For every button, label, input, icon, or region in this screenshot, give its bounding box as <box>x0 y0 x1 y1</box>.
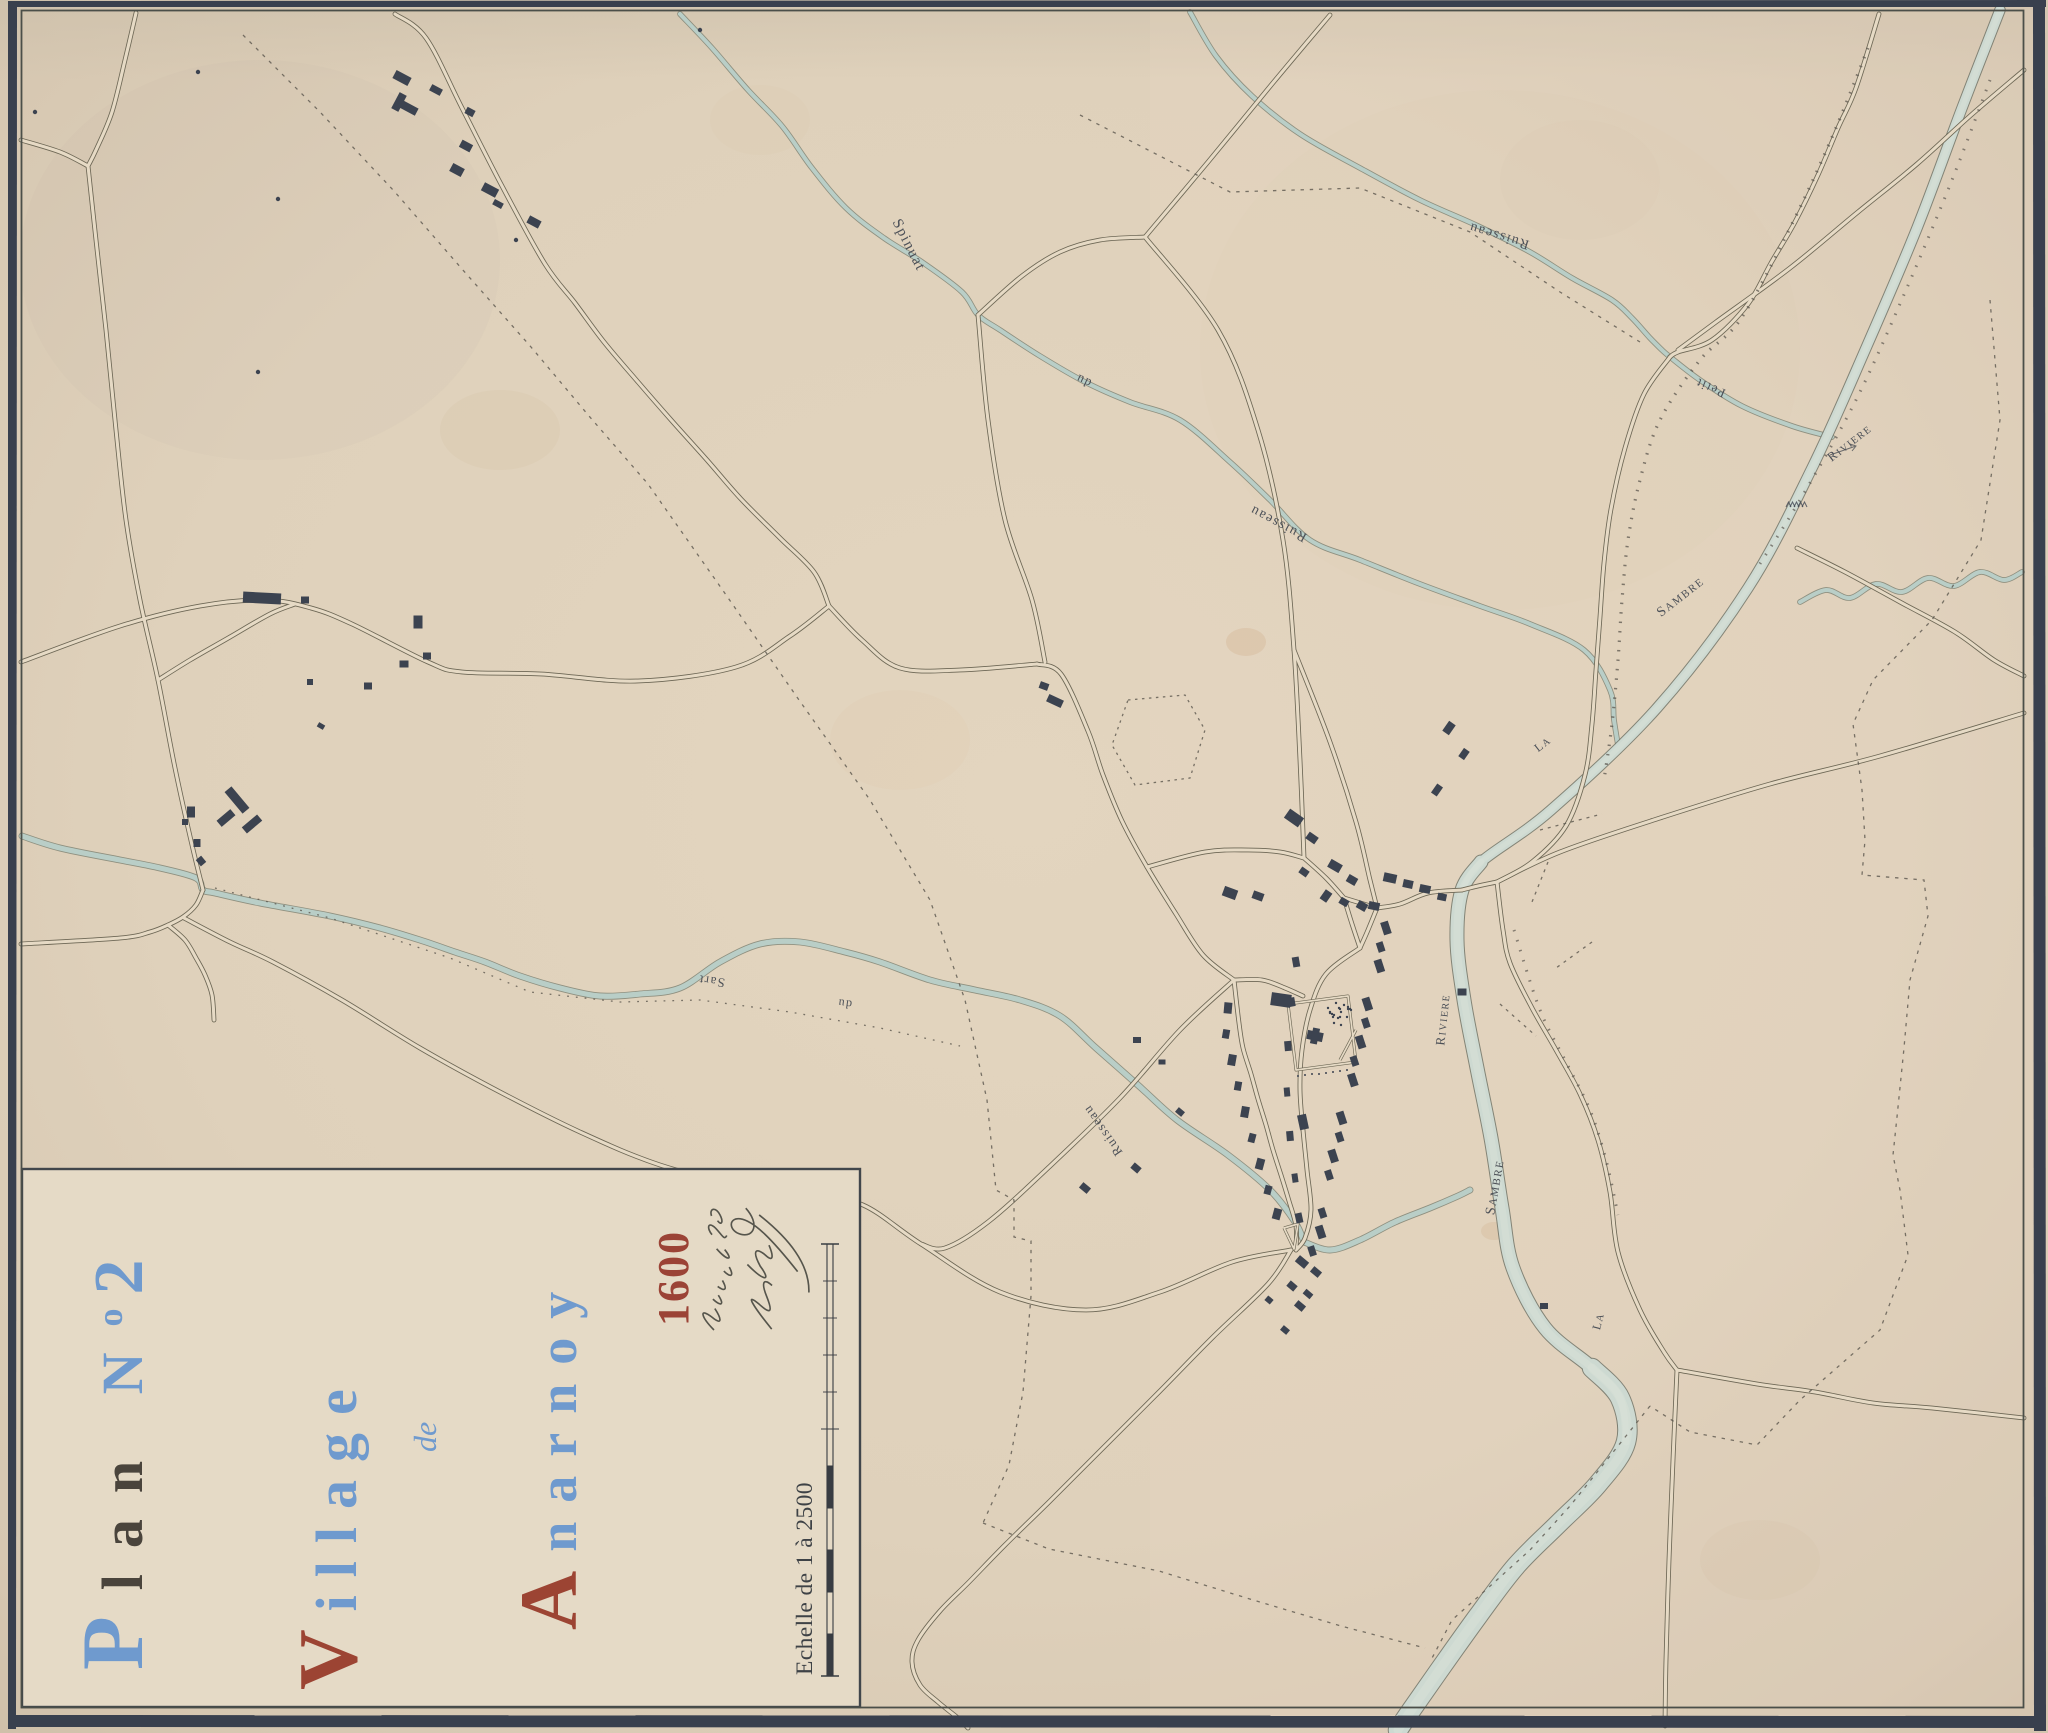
svg-text:du: du <box>836 996 853 1012</box>
svg-text:Echelle de 1 à 2500: Echelle de 1 à 2500 <box>792 1482 818 1675</box>
svg-text:de: de <box>407 1422 443 1452</box>
svg-text:1600: 1600 <box>649 1230 698 1326</box>
